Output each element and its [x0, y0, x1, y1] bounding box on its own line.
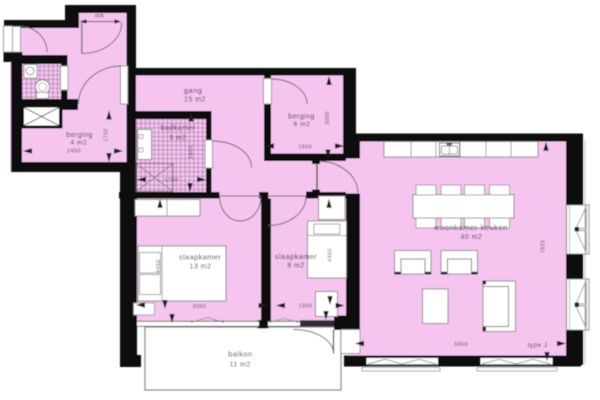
svg-text:1750: 1750 — [104, 128, 110, 142]
svg-text:1900: 1900 — [299, 304, 313, 310]
svg-text:4450: 4450 — [328, 248, 334, 262]
svg-text:gang: gang — [184, 86, 203, 95]
svg-text:slaapkamer: slaapkamer — [179, 253, 221, 262]
svg-text:7825: 7825 — [541, 240, 547, 254]
svg-text:15 m2: 15 m2 — [184, 97, 206, 104]
svg-text:1900: 1900 — [298, 145, 312, 151]
svg-text:2450: 2450 — [67, 149, 81, 155]
svg-text:13 m2: 13 m2 — [190, 264, 212, 271]
svg-text:berging: berging — [66, 132, 93, 139]
svg-text:4450: 4450 — [156, 259, 162, 273]
svg-text:woonkamer-keuken: woonkamer-keuken — [433, 223, 507, 232]
svg-text:type J: type J — [528, 342, 548, 349]
svg-text:5050: 5050 — [454, 342, 468, 348]
svg-text:40 m2: 40 m2 — [461, 234, 483, 241]
svg-text:1750: 1750 — [165, 178, 179, 184]
svg-text:4 m2: 4 m2 — [70, 140, 87, 147]
svg-text:balkon: balkon — [228, 350, 252, 359]
svg-text:3050: 3050 — [193, 304, 207, 310]
svg-text:11 m2: 11 m2 — [230, 362, 251, 369]
svg-text:6 m2: 6 m2 — [294, 121, 311, 128]
svg-text:5 m2: 5 m2 — [170, 135, 187, 142]
svg-text:berging: berging — [288, 114, 315, 121]
svg-text:mk: mk — [95, 13, 105, 20]
svg-text:2800: 2800 — [189, 145, 195, 159]
svg-text:3000: 3000 — [325, 111, 331, 125]
svg-text:badkamer: badkamer — [161, 125, 196, 132]
svg-text:8 m2: 8 m2 — [287, 263, 304, 270]
svg-text:slaapkamer: slaapkamer — [275, 252, 317, 261]
